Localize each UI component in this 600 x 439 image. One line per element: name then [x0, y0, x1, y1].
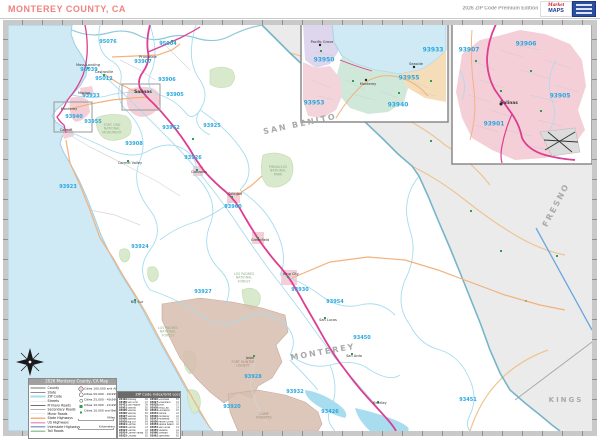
scale-bar-miles: Miles — [78, 420, 114, 421]
zip-place-name: Spreckels — [159, 435, 176, 438]
map-frame-left — [3, 20, 8, 436]
scale-km-label: Kilometers — [99, 425, 115, 429]
primary-swatch — [31, 405, 46, 406]
toll-swatch — [31, 430, 46, 432]
legend-city-label: Cities 100,000 and Above — [84, 387, 117, 391]
county-swatch — [31, 387, 46, 389]
us-hwy-swatch — [31, 422, 46, 424]
zip-swatch — [31, 396, 46, 398]
zip-place-name: Chualar — [128, 435, 145, 438]
zip-code: 93925 — [119, 435, 128, 438]
legend-city-row: Cities 10,000 and Below — [78, 408, 115, 414]
map-frame-right — [592, 20, 597, 436]
zip-grid-ref: B2 — [144, 435, 148, 438]
inset-monterey-peninsula — [301, 22, 448, 122]
city-size-icon — [80, 411, 82, 413]
interstate-swatch — [31, 426, 46, 428]
scale-miles-label: Miles — [107, 416, 115, 420]
zip-index-title: ZIP Code Index/Grid Location — [135, 393, 180, 397]
zip-index-table: ZIP Code Index/Grid Location 93426Bradle… — [117, 391, 181, 439]
zip-code: 93962 — [150, 435, 159, 438]
inset-salinas — [452, 22, 592, 164]
legend-city-rows: Cities 100,000 and AboveCities 50,000 - … — [78, 386, 115, 414]
map-frame-top — [3, 20, 597, 25]
zip-index-row: 93925ChualarB2 — [119, 435, 148, 438]
state-hwy-swatch — [31, 417, 46, 419]
legend-row: Toll Roads — [31, 429, 77, 433]
zip-grid-ref: B2 — [175, 435, 179, 438]
legend-symbol-rows: CountyStateZIP CodeStreetsPrimary RoadsS… — [31, 386, 77, 433]
legend-city-label: Cities 50,000 - 99,999 — [84, 393, 117, 397]
legend-city-label: Cities 25,000 - 49,999 — [84, 398, 117, 402]
legend-box: 2026 Monterey County, CA Map CountyState… — [28, 378, 117, 439]
zip-index-column-2: 93926GonzalesB393927GreenfieldC493928Jol… — [149, 398, 180, 438]
legend-city-label: Cities 10,000 - 24,999 — [84, 404, 117, 408]
minor-swatch — [31, 414, 46, 415]
streets-swatch — [31, 401, 46, 402]
map-page: MONTEREY COUNTY, CA 2026 ZIP Code Premiu… — [0, 0, 600, 439]
county-map-canvas — [0, 0, 600, 439]
state-swatch — [31, 392, 46, 393]
legend-title: 2026 Monterey County, CA Map — [45, 380, 108, 384]
scale-bar-kilometers: Kilometers — [78, 429, 114, 430]
zip-index-column-1: 93426BradleyD693450San ArdoC593451San Mi… — [118, 398, 149, 438]
legend-city-label: Cities 10,000 and Below — [84, 409, 117, 413]
secondary-swatch — [31, 409, 46, 410]
zip-index-row: 93962SpreckelsB2 — [150, 435, 179, 438]
legend-row-label: Toll Roads — [48, 429, 64, 433]
